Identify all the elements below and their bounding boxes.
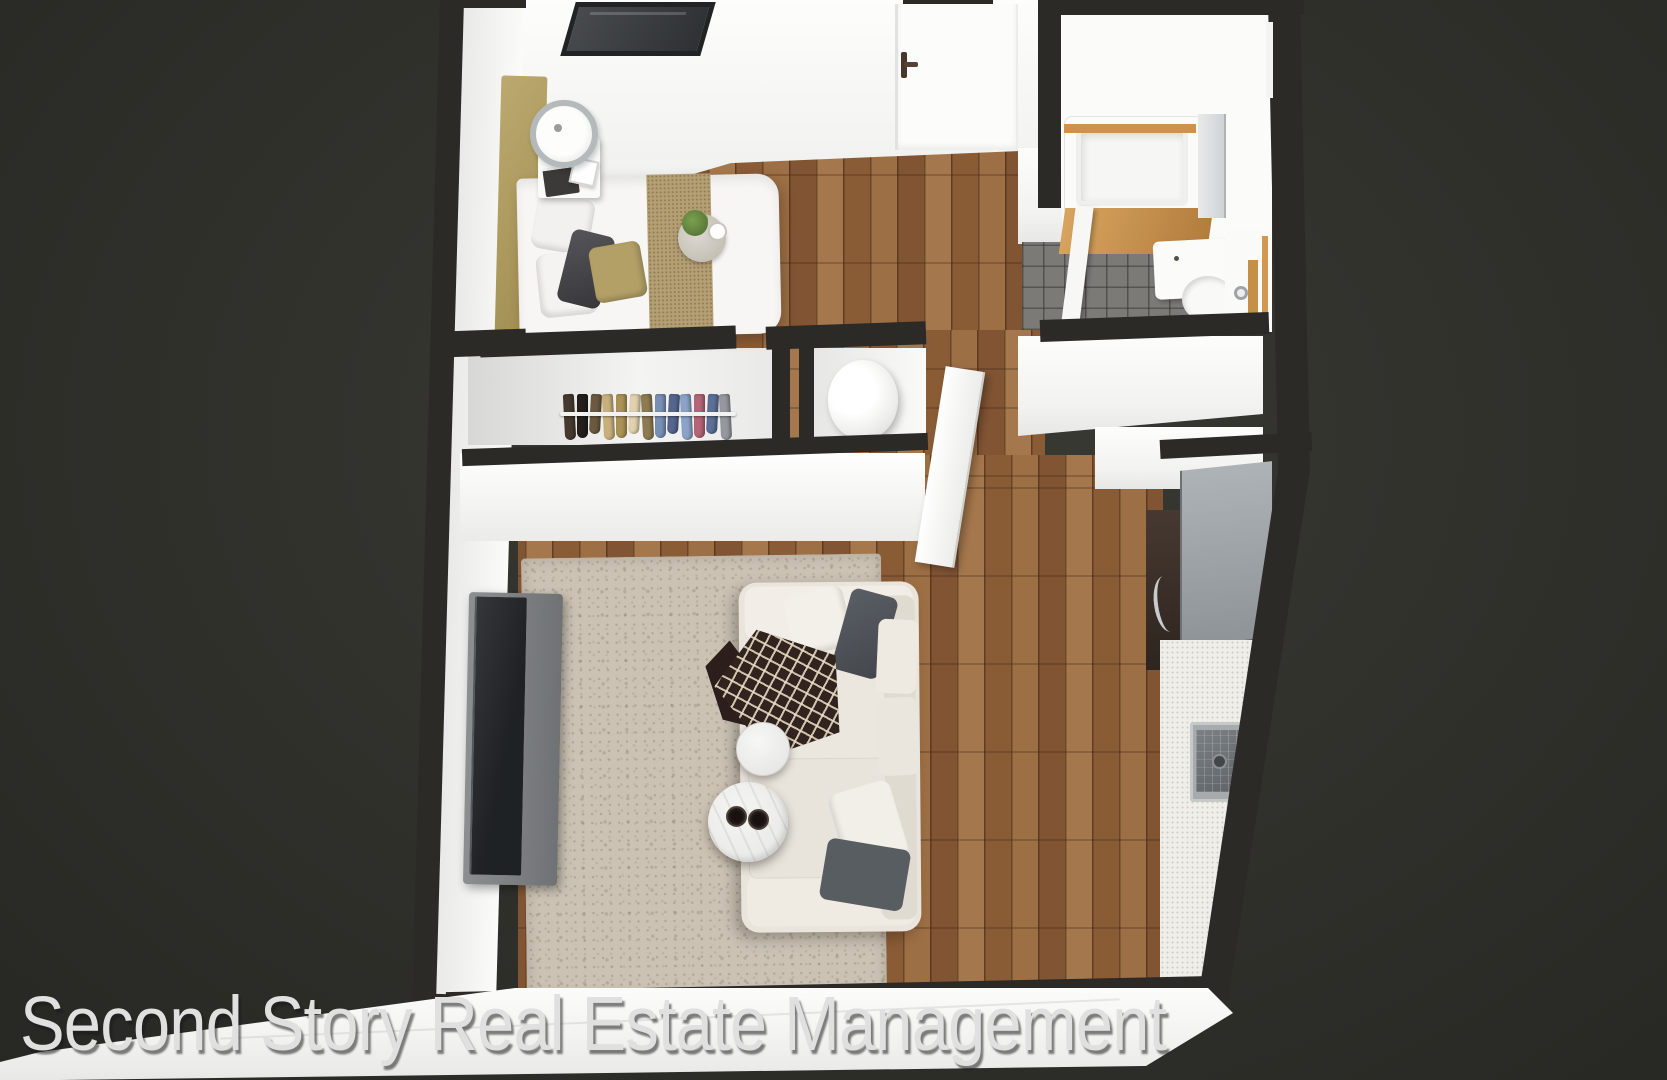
bathroom-faucet bbox=[1234, 286, 1248, 300]
wall-top-left bbox=[460, 0, 526, 8]
garment bbox=[694, 394, 705, 438]
living-north-wall-face bbox=[460, 453, 925, 541]
garment bbox=[602, 394, 615, 441]
tray-cup bbox=[708, 222, 727, 241]
garment bbox=[577, 394, 588, 438]
water-heater-cylinder bbox=[828, 360, 898, 440]
cup bbox=[726, 806, 747, 827]
wall-stub-2 bbox=[799, 346, 814, 446]
wall-bathroom-west bbox=[1038, 0, 1061, 208]
bathtub-wood-trim bbox=[1064, 124, 1196, 133]
wall-stub-1 bbox=[772, 346, 790, 446]
sink-drain bbox=[1212, 754, 1227, 769]
table-lamp bbox=[530, 100, 598, 168]
plant bbox=[682, 210, 708, 236]
sofa-lumbar-pillow-1 bbox=[876, 619, 919, 695]
garment bbox=[641, 394, 654, 441]
window-glint bbox=[590, 12, 687, 15]
watermark-text: Second Story Real Estate Management bbox=[20, 986, 1166, 1063]
garment bbox=[719, 394, 732, 441]
toilet-flush-button bbox=[1174, 256, 1179, 261]
screenshot-root: { "watermark": { "text": "Second Story R… bbox=[0, 0, 1667, 1080]
entry-door bbox=[895, 4, 1018, 150]
bathroom-south-face bbox=[1018, 336, 1263, 436]
bathtub-basin bbox=[1076, 128, 1188, 206]
clothes-rod bbox=[560, 412, 736, 416]
wall-bathroom-top bbox=[1038, 0, 1304, 15]
coffee-table-small bbox=[736, 722, 790, 776]
bed-pillow-tan bbox=[588, 240, 649, 304]
sofa-lumbar-pillow-2 bbox=[876, 697, 919, 777]
garment bbox=[616, 394, 627, 438]
cup bbox=[748, 809, 769, 830]
garment bbox=[655, 394, 666, 438]
door-handle-lever bbox=[904, 62, 918, 67]
window bbox=[560, 2, 715, 56]
garment bbox=[680, 394, 693, 441]
lamp-finial bbox=[554, 124, 562, 132]
tv bbox=[469, 596, 527, 875]
wall-right-highlight bbox=[1266, 22, 1273, 98]
floor-plan bbox=[430, 0, 1330, 1080]
garment bbox=[563, 394, 576, 441]
hanging-clothes bbox=[563, 394, 739, 444]
shower-glass-panel bbox=[1198, 114, 1226, 218]
